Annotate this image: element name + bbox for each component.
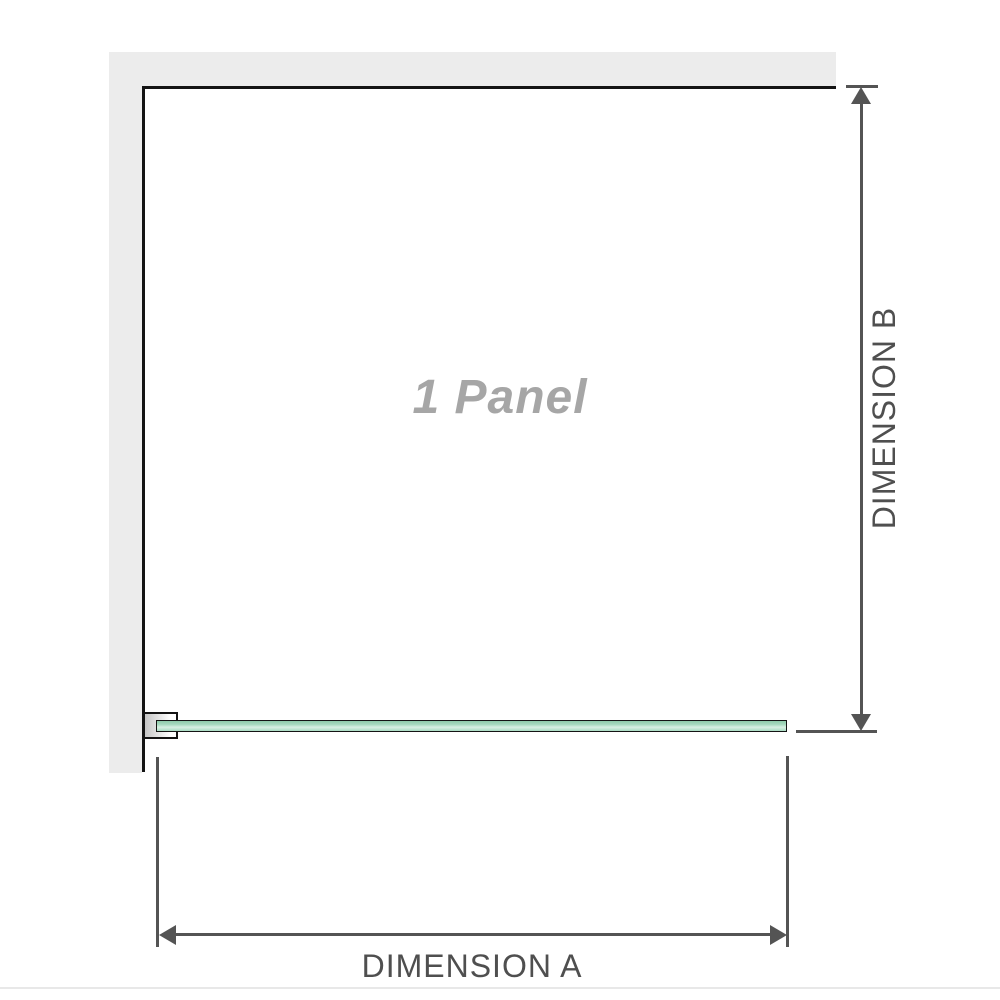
arrow-left-icon [159, 925, 176, 945]
enclosure-top-edge [142, 86, 836, 89]
diagram-canvas: 1 Panel DIMENSION B DIMENSION A [0, 0, 1000, 1000]
wall-left-segment [109, 52, 142, 773]
dimension-a-right-extension [786, 756, 789, 947]
footer-divider [0, 987, 1000, 989]
panel-count-label: 1 Panel [300, 370, 700, 425]
glass-panel [156, 720, 787, 732]
arrow-right-icon [770, 925, 787, 945]
dimension-b-label: DIMENSION B [865, 218, 903, 618]
enclosure-left-edge [142, 86, 145, 772]
wall-top-segment [109, 52, 836, 86]
dimension-b-line [860, 95, 863, 723]
arrow-up-icon [851, 87, 871, 104]
arrow-down-icon [851, 714, 871, 731]
dimension-a-label: DIMENSION A [262, 948, 682, 985]
dimension-a-left-extension [156, 757, 159, 947]
dimension-a-line [172, 933, 778, 936]
